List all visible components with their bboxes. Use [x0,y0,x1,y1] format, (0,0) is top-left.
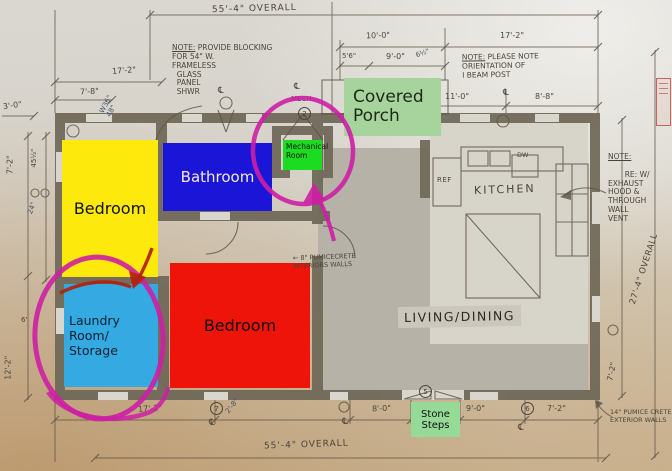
marker-annotation-layer [0,0,672,471]
floorplan-scan: Bedroom Bathroom Bedroom Laundry Room/ S… [0,0,672,471]
